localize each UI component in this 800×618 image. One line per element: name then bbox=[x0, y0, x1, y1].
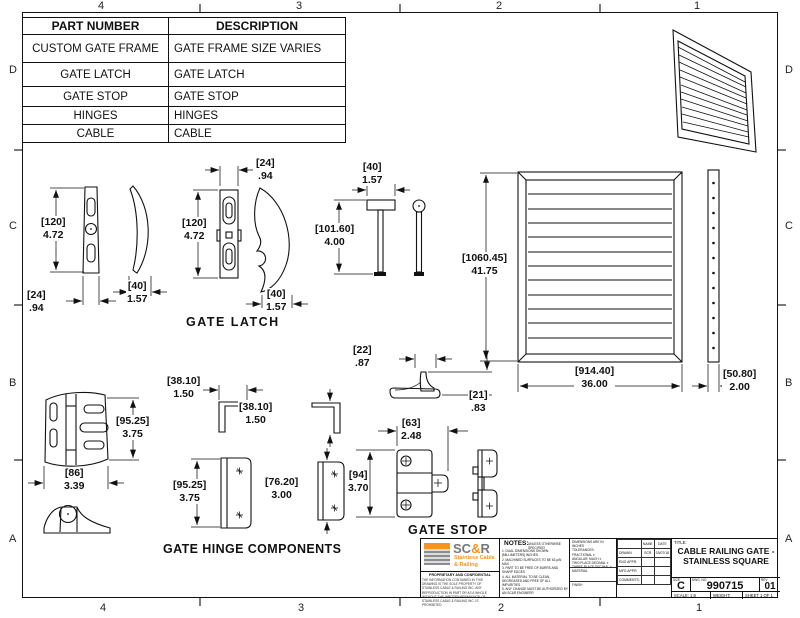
scr-logo-tagline: & Railing bbox=[454, 562, 478, 569]
stop-side-view bbox=[473, 450, 497, 517]
dim-latch-handle-height: [120]4.72 bbox=[40, 216, 67, 241]
gate-stop-label: GATE STOP bbox=[408, 523, 488, 537]
table-row: CUSTOM GATE FRAME GATE FRAME SIZE VARIES bbox=[23, 35, 346, 63]
latch-handle-front-view bbox=[50, 187, 116, 305]
drawn-label: DRAWN bbox=[618, 549, 642, 558]
part-number-cell: HINGES bbox=[23, 107, 169, 125]
description-cell: CABLE bbox=[169, 125, 346, 143]
dim-stop-profile-width: [22].87 bbox=[352, 344, 373, 369]
table-row: HINGES HINGES bbox=[23, 107, 346, 125]
proprietary-text: THE INFORMATION CONTAINED IN THIS DRAWIN… bbox=[422, 578, 498, 607]
logo-cell: SC&R Stainless Cable & Railing PROPRIETA… bbox=[421, 539, 499, 597]
note-item: 5. ANY CHANGE MUST BE AUTHORIZED BY AN S… bbox=[502, 587, 568, 595]
date-header: DATE bbox=[654, 540, 670, 549]
drawn-name: SCR bbox=[641, 549, 654, 558]
dim-latch-hook-thickness: [40]1.57 bbox=[265, 288, 287, 313]
revision: 01 bbox=[760, 582, 780, 591]
part-number-cell: GATE STOP bbox=[23, 87, 169, 107]
dim-pin-head-width: [40]1.57 bbox=[361, 161, 383, 186]
tolerance-lines: DIMENSIONS ARE IN INCHES TOLERANCES: FRA… bbox=[570, 539, 616, 570]
table-row: GATE STOP GATE STOP bbox=[23, 87, 346, 107]
scale-cell: SCALE: 1:8 bbox=[672, 591, 710, 599]
title-label: TITLE: bbox=[674, 540, 687, 545]
scr-logo-tagline: Stainless Cable bbox=[454, 555, 495, 562]
material-label: MATERIAL bbox=[570, 567, 617, 574]
mfg-appr-label: MFG APPR. bbox=[618, 567, 642, 576]
gate-isometric-view bbox=[673, 30, 756, 152]
part-number-cell: CUSTOM GATE FRAME bbox=[23, 35, 169, 63]
latch-pin-side-view bbox=[413, 200, 425, 276]
drawing-title: CABLE RAILING GATE - STAINLESS SQUARE bbox=[672, 546, 780, 566]
parts-table-header-part-number: PART NUMBER bbox=[23, 18, 169, 35]
dim-gate-width: [914.40]36.00 bbox=[574, 365, 615, 390]
gate-hinge-components-label: GATE HINGE COMPONENTS bbox=[163, 542, 341, 556]
part-number-cell: CABLE bbox=[23, 125, 169, 143]
weight-cell: WEIGHT: bbox=[710, 591, 742, 599]
tolerances-cell: DIMENSIONS ARE IN INCHES TOLERANCES: FRA… bbox=[569, 539, 616, 597]
part-number-cell: GATE LATCH bbox=[23, 63, 169, 87]
table-row: CABLE CABLE bbox=[23, 125, 346, 143]
rev-cell: REV 01 bbox=[759, 577, 780, 591]
notes-heading: NOTES: bbox=[504, 540, 529, 547]
dim-bracket1-width: [38.10]1.50 bbox=[166, 375, 201, 400]
parts-table: PART NUMBER DESCRIPTION CUSTOM GATE FRAM… bbox=[22, 17, 346, 143]
dim-latch-handle-thickness: [40]1.57 bbox=[126, 280, 148, 305]
description-cell: HINGES bbox=[169, 107, 346, 125]
description-cell: GATE STOP bbox=[169, 87, 346, 107]
dim-bracket2-height: [38.10]1.50 bbox=[238, 401, 273, 426]
scr-logo-wordmark: SC&R bbox=[453, 541, 490, 556]
dim-stop-height: [94]3.70 bbox=[347, 469, 369, 494]
dim-stop-profile-height: [21].83 bbox=[468, 389, 489, 414]
dim-latch-body-width: [24].94 bbox=[255, 157, 276, 182]
table-row: GATE LATCH GATE LATCH bbox=[23, 63, 346, 87]
gate-front-view bbox=[480, 172, 682, 392]
finish-label: FINISH bbox=[570, 581, 617, 588]
dim-pin-height: [101.60]4.00 bbox=[314, 223, 355, 248]
dim-latch-handle-width: [24].94 bbox=[26, 289, 47, 314]
comments-label: COMMENTS: bbox=[618, 576, 642, 585]
eng-appr-label: ENG APPR. bbox=[618, 558, 642, 567]
drawing-size: C bbox=[672, 582, 690, 591]
approvals-cell: NAME DATE DRAWN SCR 03/07/18 ENG APPR. M… bbox=[616, 539, 671, 597]
name-header: NAME bbox=[641, 540, 654, 549]
dim-hinge-width: [86]3.39 bbox=[63, 467, 85, 492]
dim-gate-thickness: [50.80]2.00 bbox=[722, 368, 757, 393]
proprietary-heading: PROPRIETARY AND CONFIDENTIAL bbox=[421, 571, 499, 577]
hinge-bracket-2 bbox=[312, 389, 340, 447]
note-item: 3. PART TO BE FREE OF BURRS AND SHARP ED… bbox=[502, 566, 568, 574]
parts-table-header-description: DESCRIPTION bbox=[169, 18, 346, 35]
dim-gate-height: [1060.45]41.75 bbox=[461, 252, 508, 277]
title-cell: TITLE: CABLE RAILING GATE - STAINLESS SQ… bbox=[671, 539, 779, 597]
drawing-sheet: 4 3 2 1 4 3 2 1 D C B A D C B A bbox=[0, 0, 800, 618]
gate-cables bbox=[528, 194, 672, 338]
hinge-side-profile-view bbox=[44, 506, 110, 534]
gate-latch-label: GATE LATCH bbox=[186, 315, 280, 329]
dim-stop-width: [63]2.48 bbox=[400, 417, 422, 442]
scr-logo-image bbox=[424, 543, 450, 565]
note-item: 1. DUAL DIMENSIONS SHOWN: [MILLIMETERS] … bbox=[502, 549, 568, 557]
gate-side-view bbox=[692, 170, 737, 392]
description-cell: GATE FRAME SIZE VARIES bbox=[169, 35, 346, 63]
size-cell: SIZE C bbox=[672, 577, 690, 591]
notes-cell: NOTES: UNLESS OTHERWISE SPECIFIED 1. DUA… bbox=[499, 539, 569, 597]
dwg-no-cell: DWG. NO. 990715 bbox=[690, 577, 759, 591]
hinge-plate-2 bbox=[318, 448, 344, 534]
note-item: 4. ALL MATERIAL TO BE CLEAN, DEGREASED A… bbox=[502, 575, 568, 588]
drawn-date: 03/07/18 bbox=[654, 549, 670, 558]
description-cell: GATE LATCH bbox=[169, 63, 346, 87]
drawing-number: 990715 bbox=[691, 582, 759, 591]
dim-latch-body-height: [120]4.72 bbox=[181, 217, 208, 242]
dim-plate2-height: [76.20]3.00 bbox=[264, 476, 299, 501]
sheet-cell: SHEET 1 OF 1 bbox=[742, 591, 780, 599]
dim-plate1-height: [95.25]3.75 bbox=[172, 479, 207, 504]
title-block: SC&R Stainless Cable & Railing PROPRIETA… bbox=[420, 538, 778, 598]
dim-hinge-height: [95.25]3.75 bbox=[115, 415, 150, 440]
